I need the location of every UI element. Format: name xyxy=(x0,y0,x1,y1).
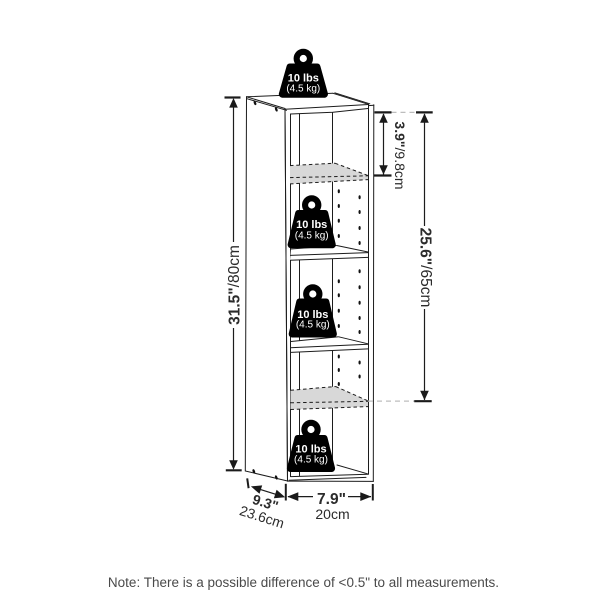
svg-text:10 lbs: 10 lbs xyxy=(295,443,326,455)
svg-text:(4.5 kg): (4.5 kg) xyxy=(295,230,329,241)
svg-text:3.9"/9.8cm: 3.9"/9.8cm xyxy=(392,121,408,189)
svg-text:25.6"/65cm: 25.6"/65cm xyxy=(417,228,434,308)
svg-text:10 lbs: 10 lbs xyxy=(296,219,327,231)
svg-text:(4.5 kg): (4.5 kg) xyxy=(296,320,330,331)
svg-text:31.5"/80cm: 31.5"/80cm xyxy=(226,245,243,325)
svg-text:(4.5 kg): (4.5 kg) xyxy=(294,455,328,466)
svg-text:20cm: 20cm xyxy=(315,506,349,522)
svg-text:(4.5 kg): (4.5 kg) xyxy=(286,84,320,95)
svg-text:10 lbs: 10 lbs xyxy=(288,72,319,84)
svg-text:Note: There is a possible diff: Note: There is a possible difference of … xyxy=(108,575,499,590)
